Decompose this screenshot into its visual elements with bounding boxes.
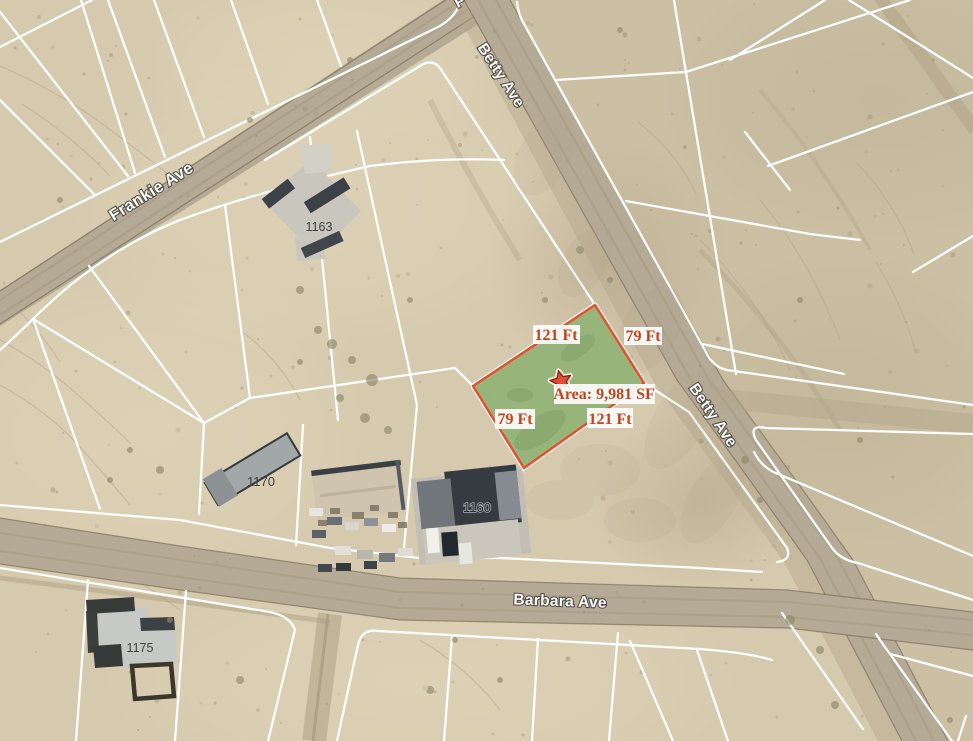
svg-text:Barbara Ave: Barbara Ave bbox=[513, 591, 607, 611]
svg-text:79 Ft: 79 Ft bbox=[497, 411, 533, 428]
svg-text:1160: 1160 bbox=[463, 500, 491, 515]
svg-text:79 Ft: 79 Ft bbox=[625, 328, 661, 345]
svg-text:1175: 1175 bbox=[127, 641, 154, 655]
svg-text:121 Ft: 121 Ft bbox=[534, 327, 578, 344]
svg-text:121 Ft: 121 Ft bbox=[588, 411, 632, 428]
svg-text:1163: 1163 bbox=[306, 220, 333, 234]
svg-text:1170: 1170 bbox=[247, 474, 275, 489]
svg-text:Area: 9,981 SF: Area: 9,981 SF bbox=[553, 386, 655, 403]
